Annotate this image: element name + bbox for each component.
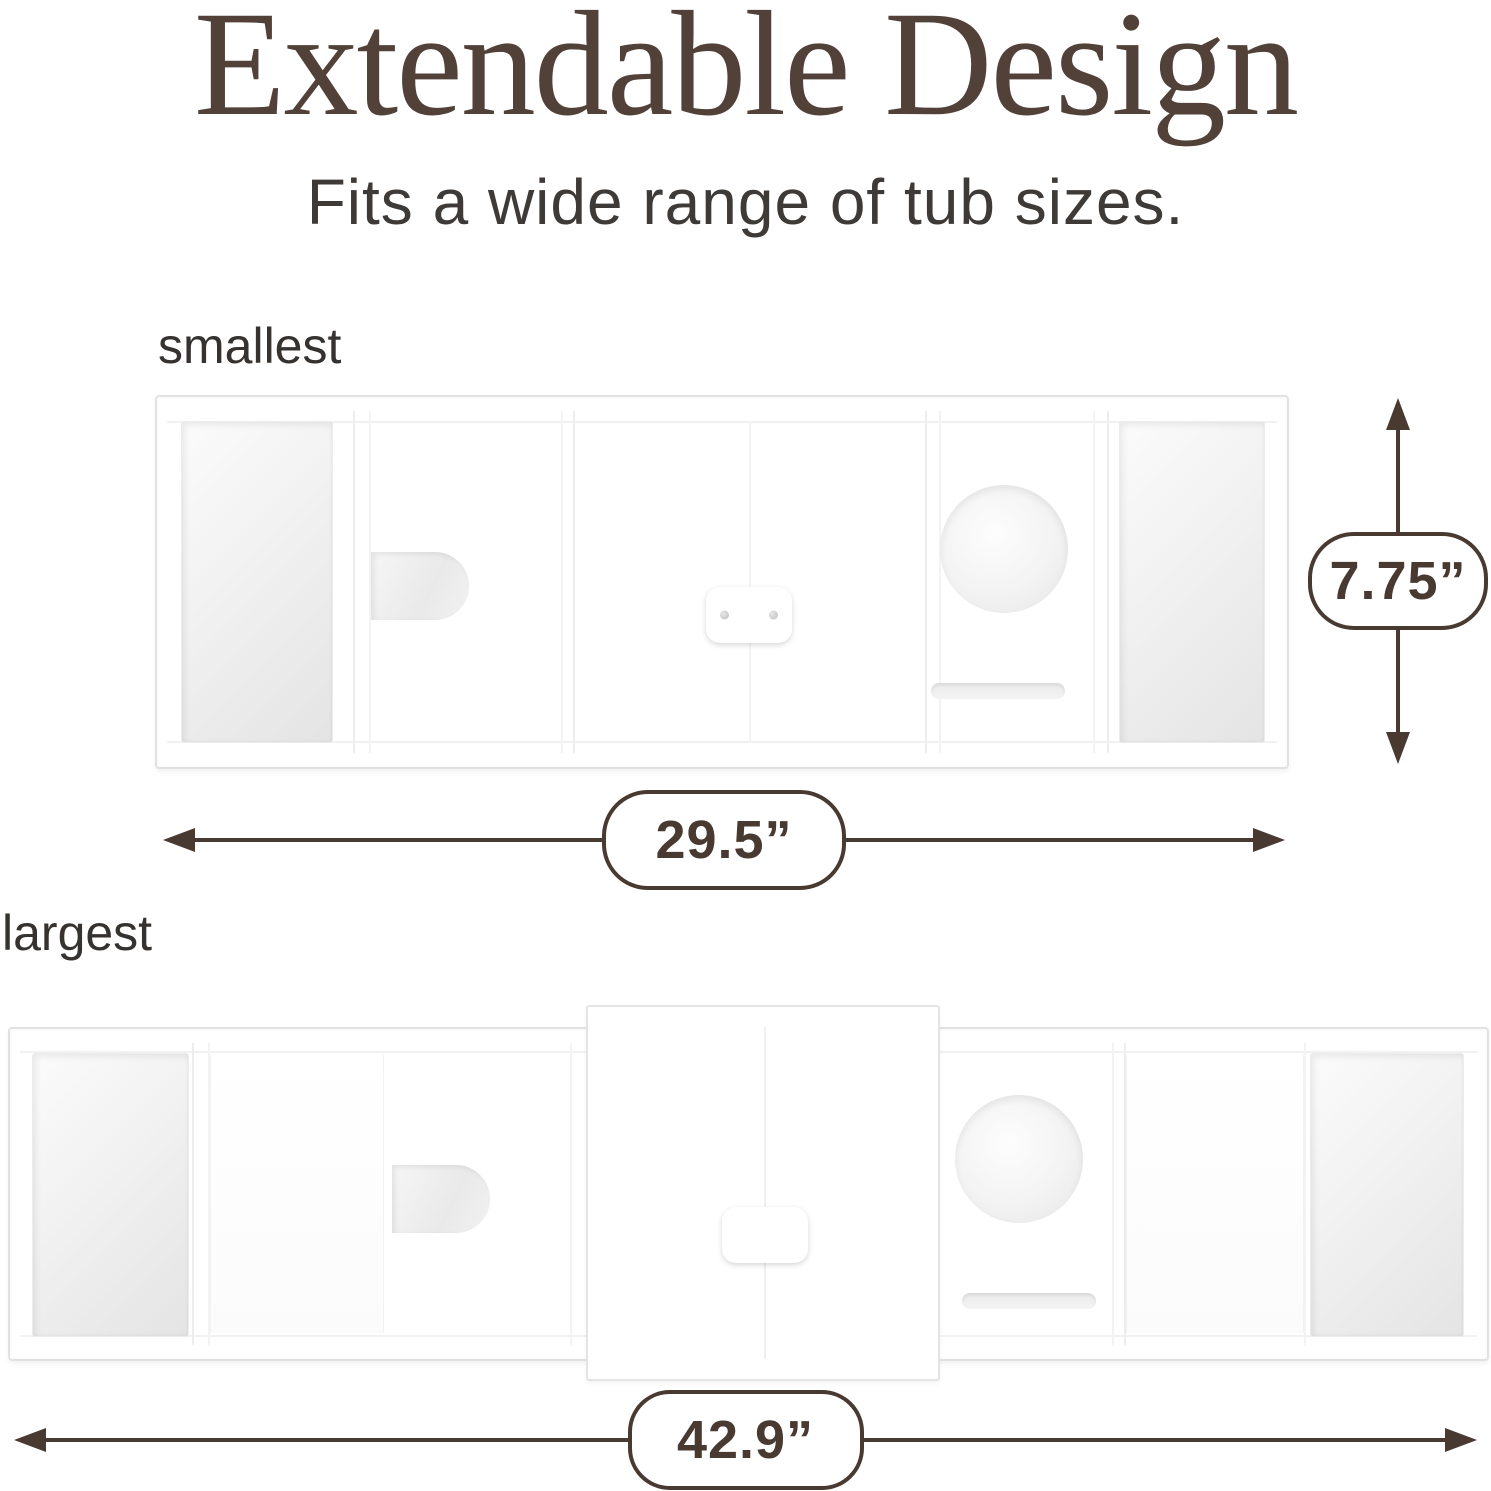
panel-seam (561, 411, 563, 753)
right-arm-panel (1126, 1055, 1304, 1333)
panel-seam (192, 1043, 194, 1345)
wine-glass-hole (940, 485, 1068, 613)
panel-seam (1093, 411, 1095, 753)
screw-dot (720, 611, 729, 620)
width-dimension-badge-largest: 42.9” (628, 1390, 864, 1490)
arrow-down-icon (1386, 732, 1410, 764)
wine-glass-hole (955, 1095, 1083, 1223)
bottom-edge-seam (167, 741, 1277, 743)
center-seam (764, 1027, 766, 1359)
accessory-slot (962, 1293, 1096, 1309)
width-dimension-value-smallest: 29.5” (655, 809, 792, 871)
size-label-smallest: smallest (158, 316, 341, 376)
center-body (586, 1005, 940, 1381)
right-tray-well (1119, 421, 1265, 743)
panel-seam (1112, 1043, 1114, 1345)
left-tray-well (32, 1053, 189, 1337)
width-dimension-smallest: 29.5” (163, 794, 1285, 886)
page-subtitle: Fits a wide range of tub sizes. (0, 164, 1491, 241)
width-dimension-badge-smallest: 29.5” (602, 790, 846, 890)
left-tray-well (181, 421, 333, 743)
width-dimension-largest: 42.9” (14, 1394, 1477, 1486)
height-dimension: 7.75” (1318, 398, 1478, 764)
arrow-right-icon (1445, 1428, 1477, 1452)
center-seam (749, 421, 751, 743)
arrow-right-icon (1253, 828, 1285, 852)
page-title: Extendable Design (0, 0, 1491, 151)
tray-diagram-smallest (155, 395, 1289, 769)
panel-seam (925, 411, 927, 753)
size-label-largest: largest (2, 903, 152, 963)
product-diagram: Extendable Design Fits a wide range of t… (0, 0, 1491, 1491)
connector-clip (722, 1207, 808, 1263)
accessory-slot (931, 683, 1065, 699)
screw-dot (769, 611, 778, 620)
book-slot-notch (371, 552, 469, 620)
tray-diagram-largest (8, 1005, 1485, 1377)
width-dimension-value-largest: 42.9” (677, 1409, 814, 1471)
height-dimension-badge: 7.75” (1308, 532, 1488, 630)
panel-seam (1304, 1043, 1306, 1345)
right-tray-well (1310, 1053, 1464, 1337)
panel-seam (353, 411, 355, 753)
panel-seam (939, 411, 941, 753)
height-dimension-value: 7.75” (1329, 550, 1466, 612)
top-edge-seam (167, 421, 1277, 423)
panel-seam (1107, 411, 1109, 753)
panel-seam (570, 1043, 572, 1345)
panel-seam (573, 411, 575, 753)
book-slot-notch (392, 1165, 490, 1233)
connector-clip (706, 587, 792, 643)
left-arm-panel (210, 1055, 384, 1333)
